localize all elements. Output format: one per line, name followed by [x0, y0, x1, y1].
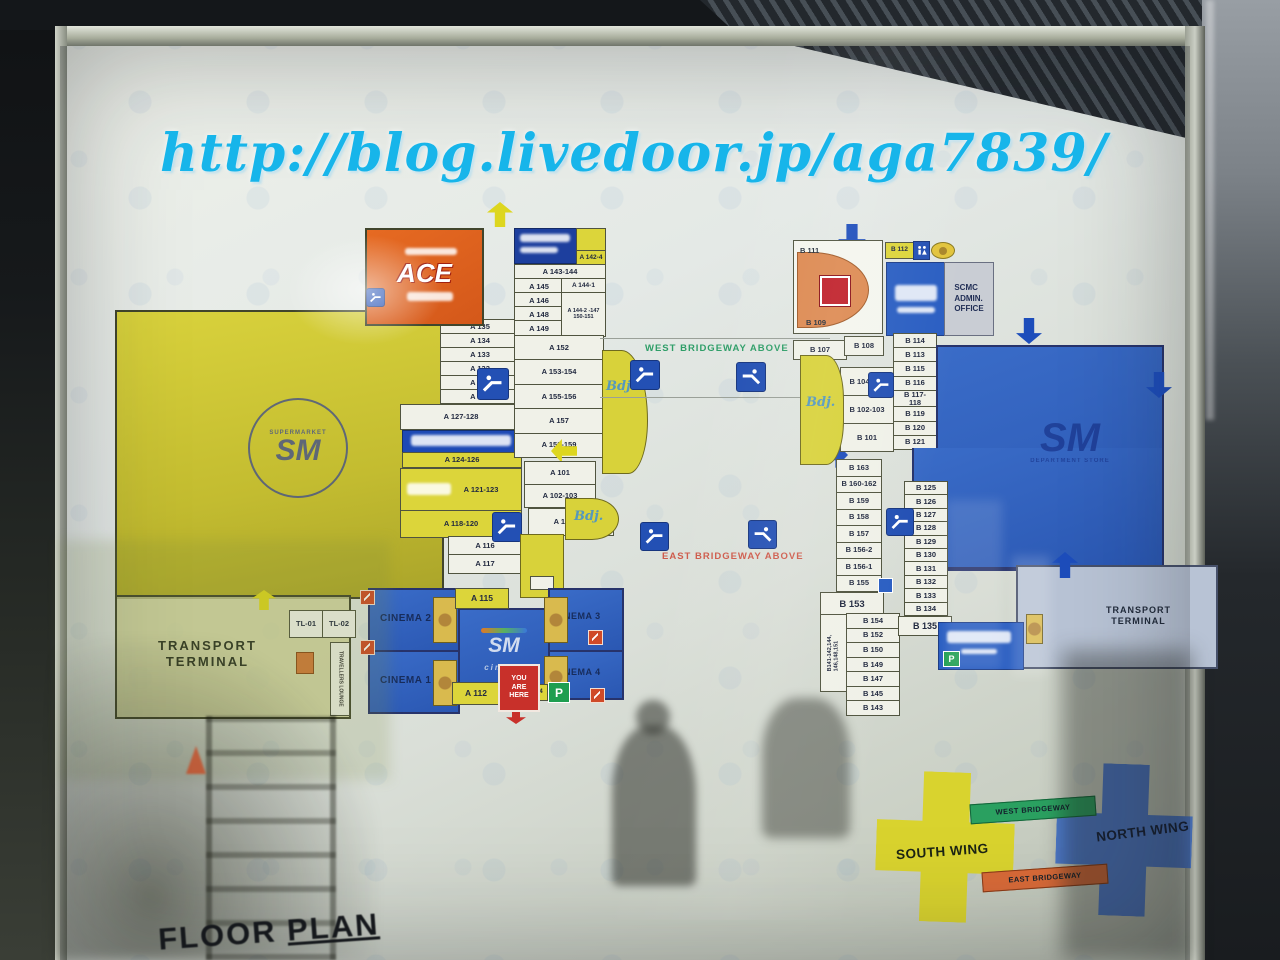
photo-mall-directory: SUPERMARKET SM A 135A 134A 133A 132A 131…	[0, 0, 1280, 960]
pharmacy-store-banner	[402, 430, 522, 454]
room-b141-group: B141-142,144, 146,148,151	[820, 614, 848, 692]
room-strip-b114-b121: B 114B 113B 115B 116B 117- 118B 119B 120…	[893, 334, 937, 450]
room-strip-b155-b163: B 163B 160-162B 159B 158B 157B 156-2B 15…	[836, 460, 882, 592]
room-b108: B 108	[844, 336, 884, 356]
room-a121: A 121-123	[400, 468, 522, 512]
room-cell: A 134	[440, 333, 520, 348]
east-bridgeway-above-label: EAST BRIDGEWAY ABOVE	[662, 551, 804, 562]
room-cell: B 120	[893, 421, 937, 436]
floor-plan-title-2: PLAN	[286, 906, 381, 947]
room-cell: B 157	[836, 525, 882, 543]
red-square-store-logo	[820, 276, 850, 306]
escalator-icon	[748, 520, 777, 549]
you-are-here-badge: YOU ARE HERE	[498, 664, 540, 712]
supermarket-sm-text: SM	[276, 436, 321, 466]
west-bridgeway-above-label: WEST BRIDGEWAY ABOVE	[645, 343, 789, 354]
escalator-icon	[640, 522, 669, 551]
escalator-icon	[886, 508, 914, 536]
corridor-yellow-blob	[800, 355, 844, 465]
sm-dept-logo: SM DEPARTMENT STORE	[1005, 418, 1135, 464]
sm-dept-logo-text: SM	[1005, 418, 1135, 458]
transport-terminal-north-label: TRANSPORT TERMINAL	[1106, 605, 1171, 627]
fire-exit-icon	[590, 688, 605, 703]
room-cell: B 101	[840, 423, 894, 452]
info-oval-icon	[931, 242, 955, 259]
sm-supermarket-logo: SUPERMARKET SM	[248, 398, 348, 498]
room-cell: B 158	[836, 509, 882, 527]
room-cell: B 129	[904, 535, 948, 549]
room-cell: B 117- 118	[893, 390, 937, 408]
cinema-logo-sm: SM	[488, 634, 520, 657]
room-cell: B 116	[893, 376, 937, 391]
room-cell: A 152	[514, 335, 604, 360]
room-cell: B 150	[846, 642, 900, 658]
room-cell: B 147	[846, 671, 900, 687]
cinema-1-label: CINEMA 1	[380, 676, 431, 686]
travellers-lounge-label: TRAVELLERS LOUNGE	[338, 651, 343, 707]
room-cell: B 113	[893, 347, 937, 362]
sm-department-store-lower	[912, 448, 1164, 569]
room-a121-label: A 121-123	[464, 486, 499, 494]
cinema-logo-swirl-icon	[481, 628, 527, 633]
room-b141-label: B141-142,144, 146,148,151	[827, 635, 840, 671]
dept-store-door	[1026, 614, 1043, 644]
room-cell: A 133	[440, 347, 520, 362]
scmc-admin-office: SCMC ADMIN. OFFICE	[944, 262, 994, 336]
yellow-up-arrow-icon	[487, 202, 513, 227]
watermark-url: http://blog.livedoor.jp/aga7839/	[160, 128, 1108, 180]
room-cell: B 156-1	[836, 558, 882, 576]
room-cell: B 152	[846, 628, 900, 644]
drugstore-banner-block	[886, 262, 946, 336]
room-strip-b125-b134: B 125B 126B 127B 128B 129B 130B 131B 132…	[904, 482, 948, 616]
bookstore-banner	[514, 228, 578, 264]
cinema-door	[544, 597, 568, 643]
room-small-upper	[576, 228, 606, 252]
store-script-logo: Bdj.	[806, 396, 835, 409]
room-cell: B 125	[904, 481, 948, 495]
room-a127: A 127-128	[400, 404, 522, 430]
cinema-2-label: CINEMA 2	[380, 614, 431, 624]
transport-terminal-south-label: TRANSPORT TERMINAL	[158, 638, 257, 669]
blue-down-arrow-icon	[1016, 318, 1042, 344]
escalator-icon	[736, 362, 766, 392]
room-cell: A 155-156	[514, 384, 604, 409]
room-cell: B 159	[836, 492, 882, 510]
room-a117: A 117	[448, 554, 522, 574]
room-cell: A 101	[524, 461, 596, 485]
room-cell: B 126	[904, 494, 948, 508]
room-cell: B 156-2	[836, 542, 882, 560]
fire-exit-icon	[360, 590, 375, 605]
room-a112: A 112	[452, 682, 500, 705]
escalator-icon	[868, 372, 894, 398]
room-cell: B 119	[893, 406, 937, 421]
room-cell: B 160-162	[836, 476, 882, 494]
room-cell: B 130	[904, 548, 948, 562]
kiosk-block	[296, 652, 314, 674]
restroom-icon	[913, 241, 930, 260]
fire-exit-icon	[588, 630, 603, 645]
room-cell: B 149	[846, 657, 900, 673]
ace-logo-text: ACE	[367, 260, 482, 286]
ace-hardware-block: ACE	[365, 228, 484, 326]
room-cell: B 154	[846, 613, 900, 629]
appliance-store-banner	[407, 483, 451, 495]
escalator-icon	[492, 512, 522, 542]
store-script-logo: Bdj.	[574, 510, 603, 523]
room-strip-a152-a159: A 152A 153-154A 155-156A 157A 158-159	[514, 336, 604, 458]
room-cell: B 133	[904, 588, 948, 602]
room-cell: B 163	[836, 459, 882, 477]
tl-rooms: TL-01TL-02	[290, 610, 356, 638]
room-cell: A 157	[514, 408, 604, 433]
room-cell: B 131	[904, 561, 948, 575]
appliance-store-block: P	[938, 622, 1024, 670]
room-cell: B 132	[904, 575, 948, 589]
room-b109-label: B 109	[806, 318, 826, 327]
parking-icon: P	[943, 651, 960, 667]
room-cell: B 134	[904, 602, 948, 616]
scmc-office-label: SCMC ADMIN. OFFICE	[954, 283, 983, 314]
room-cell: B 102-103	[840, 395, 894, 424]
escalator-icon	[630, 360, 660, 390]
room-a115: A 115	[455, 588, 509, 609]
room-cell: TL-01	[289, 610, 323, 638]
room-b111-label: B 111	[800, 246, 819, 255]
escalator-icon	[366, 288, 385, 307]
sm-dept-logo-sub: DEPARTMENT STORE	[1005, 458, 1135, 464]
room-cell: B 155	[836, 575, 882, 593]
room-a144-2: A 144-2 -147 150-151	[561, 292, 606, 337]
cinema-door	[433, 597, 457, 643]
transport-terminal-north: TRANSPORT TERMINAL	[1016, 565, 1218, 669]
room-cell: B 145	[846, 686, 900, 702]
room-strip-b143-b154: B 154B 152B 150B 149B 147B 145B 143	[846, 614, 900, 716]
room-cell: B 115	[893, 361, 937, 376]
room-b112: B 112	[885, 242, 914, 259]
parking-icon: P	[548, 682, 570, 703]
room-cell: TL-02	[322, 610, 356, 638]
room-a124: A 124-126	[402, 452, 522, 468]
room-cell: B 114	[893, 333, 937, 348]
travellers-lounge: TRAVELLERS LOUNGE	[330, 642, 350, 716]
fire-exit-icon	[360, 640, 375, 655]
elevator-icon	[878, 578, 893, 593]
room-cell: A 153-154	[514, 359, 604, 384]
room-cell: B 143	[846, 700, 900, 716]
escalator-icon	[477, 368, 509, 400]
